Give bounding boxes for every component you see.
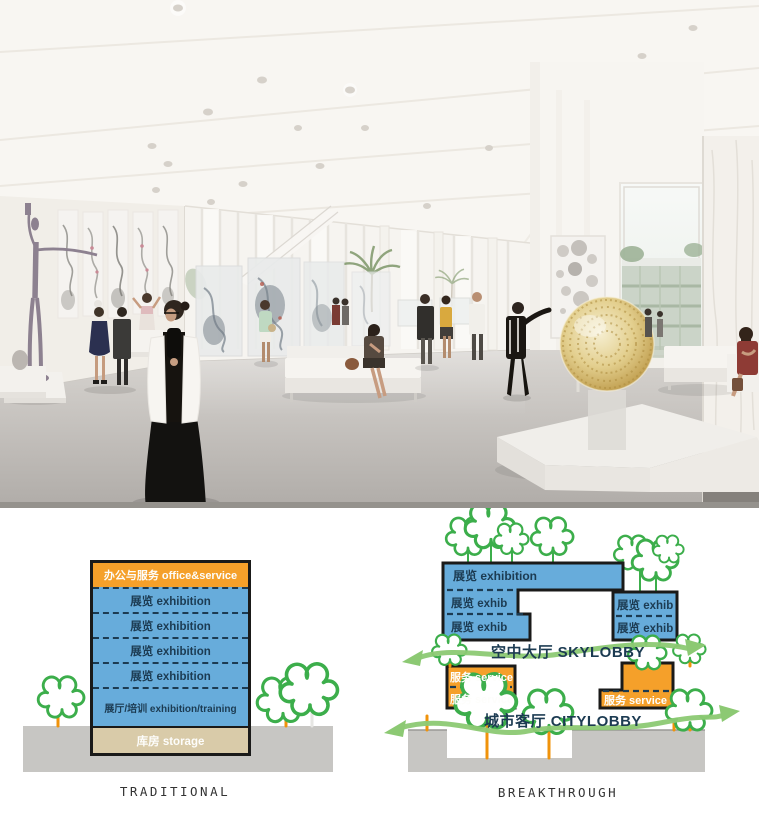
floor-exhibition-training: 展厅/培训 exhibition/training bbox=[93, 687, 248, 726]
floor-label: 办公与服务 office&service bbox=[104, 567, 237, 583]
ink-banners bbox=[58, 210, 178, 318]
concept-diagrams: 办公与服务 office&service 展览 exhibition 展览 ex… bbox=[0, 508, 759, 822]
floor-label: 展览 exhibition bbox=[130, 593, 211, 609]
floor-storage: 库房 storage bbox=[93, 726, 248, 753]
floor-exhibition-1: 展览 exhibition bbox=[93, 587, 248, 612]
floor-label: 展览 exhibition bbox=[130, 668, 211, 684]
lobby-scene bbox=[0, 0, 759, 508]
floor-office-service: 办公与服务 office&service bbox=[93, 563, 248, 587]
lobby-rendering bbox=[0, 0, 759, 508]
traditional-building: 办公与服务 office&service 展览 exhibition 展览 ex… bbox=[90, 560, 251, 756]
floor-label: 展厅/培训 exhibition/training bbox=[104, 700, 236, 715]
floor-exhibition-2: 展览 exhibition bbox=[93, 612, 248, 637]
gold-sphere-sculpture bbox=[560, 297, 654, 391]
floor-label: 展览 exhibition bbox=[130, 618, 211, 634]
architecture-concept-board: 办公与服务 office&service 展览 exhibition 展览 ex… bbox=[0, 0, 759, 822]
breakthrough-ground bbox=[408, 730, 705, 772]
floor-label: 展览 exhibition bbox=[130, 643, 211, 659]
floor-exhibition-3: 展览 exhibition bbox=[93, 637, 248, 662]
floor-label: 库房 storage bbox=[137, 733, 205, 749]
floor-exhibition-4: 展览 exhibition bbox=[93, 662, 248, 687]
